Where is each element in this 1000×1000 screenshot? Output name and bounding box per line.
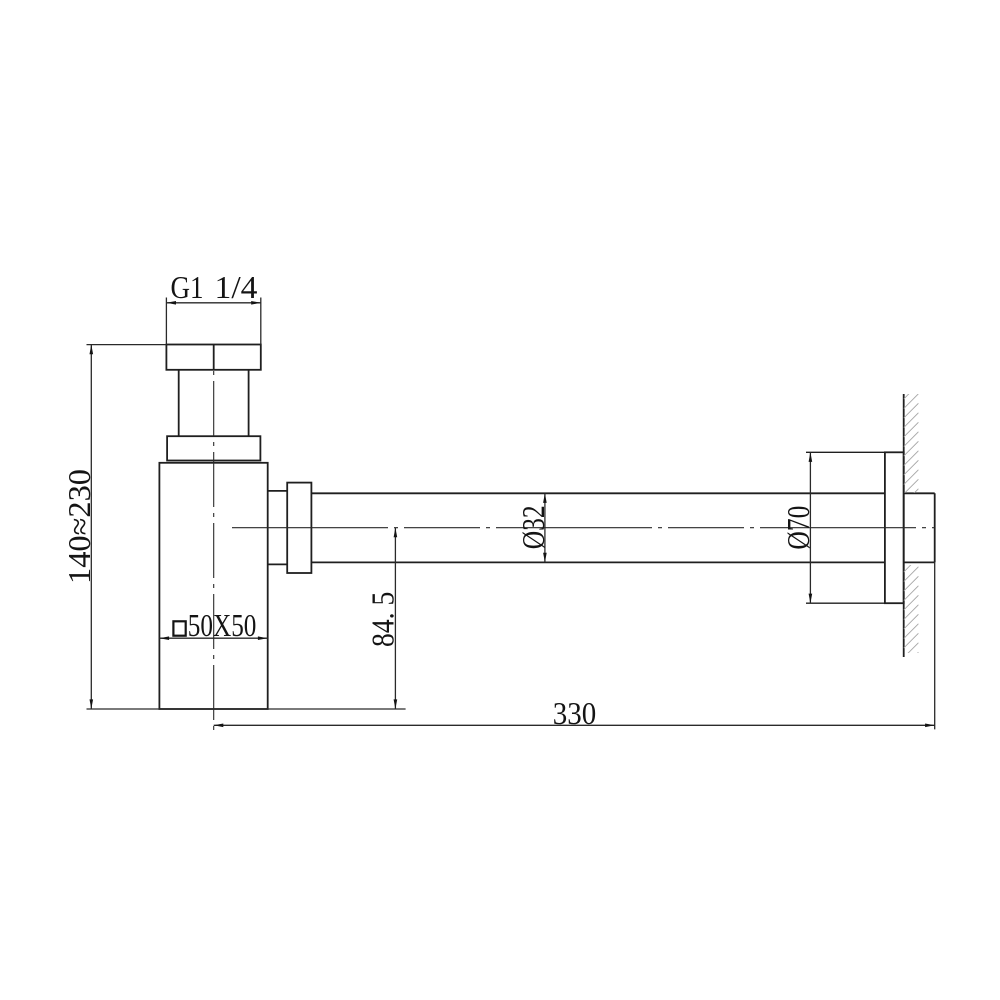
svg-text:84. 5: 84. 5 xyxy=(365,592,400,647)
svg-text:50X50: 50X50 xyxy=(188,608,257,643)
svg-text:1/4: 1/4 xyxy=(215,270,258,305)
svg-text:Ø70: Ø70 xyxy=(781,506,816,550)
svg-text:Ø32: Ø32 xyxy=(516,505,551,549)
svg-text:140≈230: 140≈230 xyxy=(62,469,97,584)
svg-text:330: 330 xyxy=(553,696,597,731)
svg-text:G1: G1 xyxy=(171,270,204,305)
